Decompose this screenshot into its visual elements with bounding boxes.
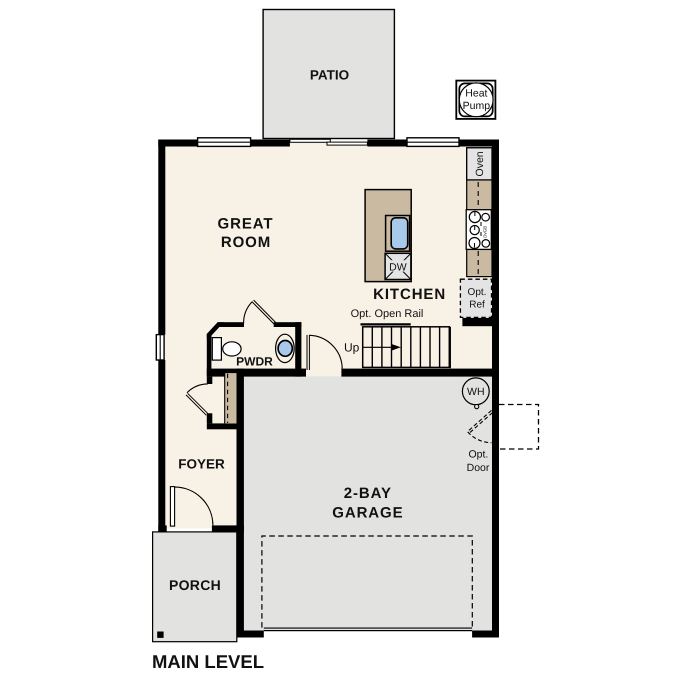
- svg-text:KITCHEN: KITCHEN: [373, 286, 446, 303]
- svg-text:FOYER: FOYER: [178, 456, 225, 471]
- svg-text:PWDR: PWDR: [236, 355, 273, 369]
- svg-text:Opt. Open Rail: Opt. Open Rail: [351, 308, 424, 320]
- svg-text:PORCH: PORCH: [169, 577, 221, 593]
- svg-text:OvGB: OvGB: [483, 226, 488, 238]
- svg-text:Oven: Oven: [474, 151, 486, 176]
- svg-text:Door: Door: [467, 462, 490, 474]
- svg-text:WH: WH: [467, 386, 485, 398]
- svg-text:2-BAY: 2-BAY: [344, 485, 392, 502]
- svg-text:MAIN LEVEL: MAIN LEVEL: [152, 651, 264, 672]
- svg-text:Opt.: Opt.: [468, 287, 487, 298]
- svg-text:GREAT: GREAT: [218, 215, 274, 232]
- svg-text:Heat: Heat: [465, 87, 487, 99]
- svg-text:DW: DW: [389, 261, 407, 273]
- svg-text:PATIO: PATIO: [310, 68, 349, 83]
- svg-text:ROOM: ROOM: [221, 234, 271, 251]
- svg-text:Ref: Ref: [469, 299, 485, 310]
- svg-text:GARAGE: GARAGE: [332, 504, 403, 521]
- svg-text:Opt.: Opt.: [468, 449, 488, 461]
- svg-text:Up: Up: [344, 341, 360, 355]
- svg-text:Pump: Pump: [463, 100, 491, 112]
